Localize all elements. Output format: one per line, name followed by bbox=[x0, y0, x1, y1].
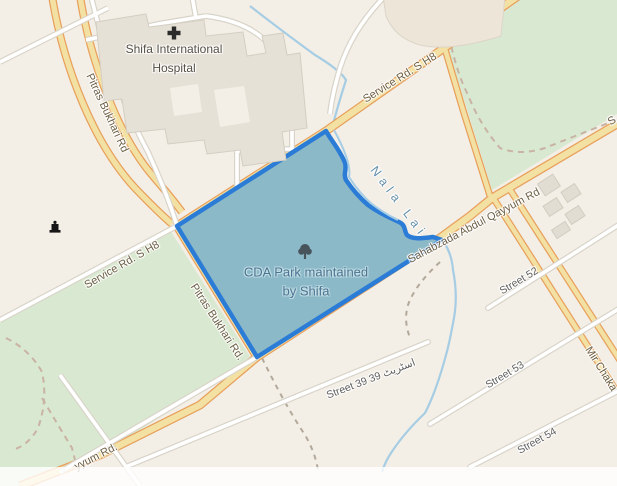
hospital-cross-icon bbox=[168, 27, 181, 40]
road-label-edge-partial: S bbox=[606, 114, 617, 128]
attribution-bar: Leaflet | Data by © OpenStreetMap, under… bbox=[0, 467, 617, 486]
hospital-courtyard bbox=[170, 84, 202, 116]
hospital-building bbox=[96, 14, 307, 166]
building bbox=[552, 221, 571, 238]
map[interactable]: Shifa International Hospital CDA Park ma… bbox=[0, 0, 617, 486]
monument-icon bbox=[50, 221, 61, 233]
street-label-39: Street 39 39 اسٹریٹ bbox=[325, 357, 417, 402]
hospital-name-label: Hospital bbox=[152, 61, 195, 75]
street-label-54: Street 54 bbox=[515, 425, 558, 456]
street-label-52: Street 52 bbox=[498, 265, 541, 297]
hospital-name-label: Shifa International bbox=[126, 42, 223, 56]
road-label-sahabzada-abdul-qayyum: Sahabzada Abdul Qayyum Rd bbox=[406, 186, 542, 266]
road-label-service-rd-left: Service Rd. S H8 bbox=[82, 239, 161, 292]
cda-park-polygon[interactable] bbox=[177, 131, 442, 357]
street-label-53: Street 53 bbox=[484, 359, 527, 391]
road-label-service-rd-top: Service Rd. S H8 bbox=[361, 51, 439, 106]
building bbox=[565, 206, 585, 225]
road-label-pitras-bukhari-top: Pitras Bukhari Rd bbox=[83, 72, 130, 155]
building bbox=[383, 0, 505, 47]
road-label-mir-chakar-partial: Mir Chaka bbox=[583, 345, 617, 394]
map-canvas bbox=[0, 0, 617, 486]
hospital-courtyard bbox=[214, 86, 250, 127]
building bbox=[561, 184, 581, 203]
building bbox=[538, 174, 561, 196]
building bbox=[543, 198, 563, 217]
